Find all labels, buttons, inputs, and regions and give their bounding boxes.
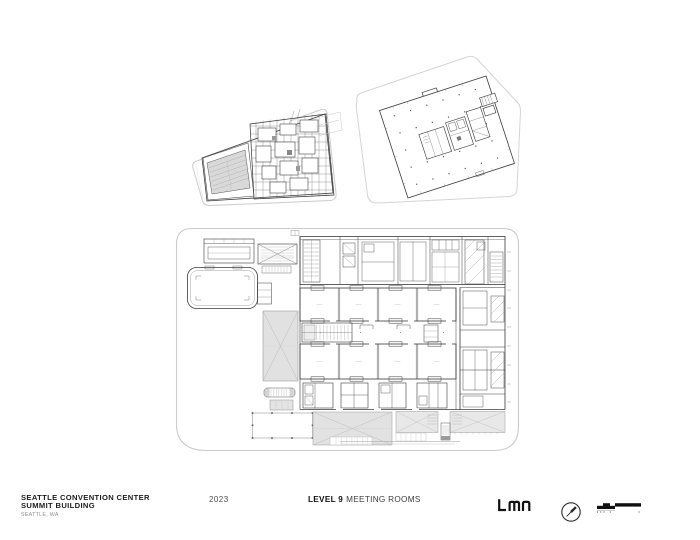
upper-left-floor-plan bbox=[193, 109, 342, 206]
scale-bar bbox=[594, 499, 646, 517]
left-hall bbox=[188, 266, 258, 309]
escalator-bank bbox=[258, 244, 297, 273]
kiosk-room bbox=[270, 400, 293, 410]
service-band bbox=[300, 237, 505, 285]
main-floor-plan bbox=[177, 229, 519, 451]
corridor-stair bbox=[302, 323, 352, 342]
atrium-void bbox=[263, 311, 298, 381]
lmn-logo: LMN bbox=[496, 497, 534, 515]
project-name-line2: SUMMIT BUILDING bbox=[21, 502, 150, 510]
skylight-band-west bbox=[313, 412, 392, 445]
terrace bbox=[252, 412, 314, 439]
drawing-canvas bbox=[0, 0, 700, 540]
project-location: SEATTLE, WA bbox=[21, 512, 150, 518]
south-rooms bbox=[303, 383, 447, 408]
lmn-logo-mark bbox=[496, 497, 534, 515]
title-block: SEATTLE CONVENTION CENTER SUMMIT BUILDIN… bbox=[21, 494, 150, 518]
lower-escalator bbox=[264, 388, 295, 397]
sheet-level-label: LEVEL 9 bbox=[308, 495, 343, 504]
sheet-year: 2023 bbox=[209, 495, 229, 504]
stage-block bbox=[204, 239, 254, 263]
east-wing bbox=[460, 285, 505, 410]
north-arrow-icon bbox=[559, 500, 583, 524]
grid-ticks bbox=[507, 252, 511, 402]
architectural-sheet: SEATTLE CONVENTION CENTER SUMMIT BUILDIN… bbox=[0, 0, 700, 540]
upper-right-floor-plan bbox=[356, 56, 520, 203]
sheet-name: MEETING ROOMS bbox=[346, 495, 420, 504]
meeting-rooms-north bbox=[300, 286, 456, 323]
sheet-title: LEVEL 9MEETING ROOMS bbox=[308, 495, 421, 504]
meeting-rooms-south bbox=[300, 342, 456, 381]
